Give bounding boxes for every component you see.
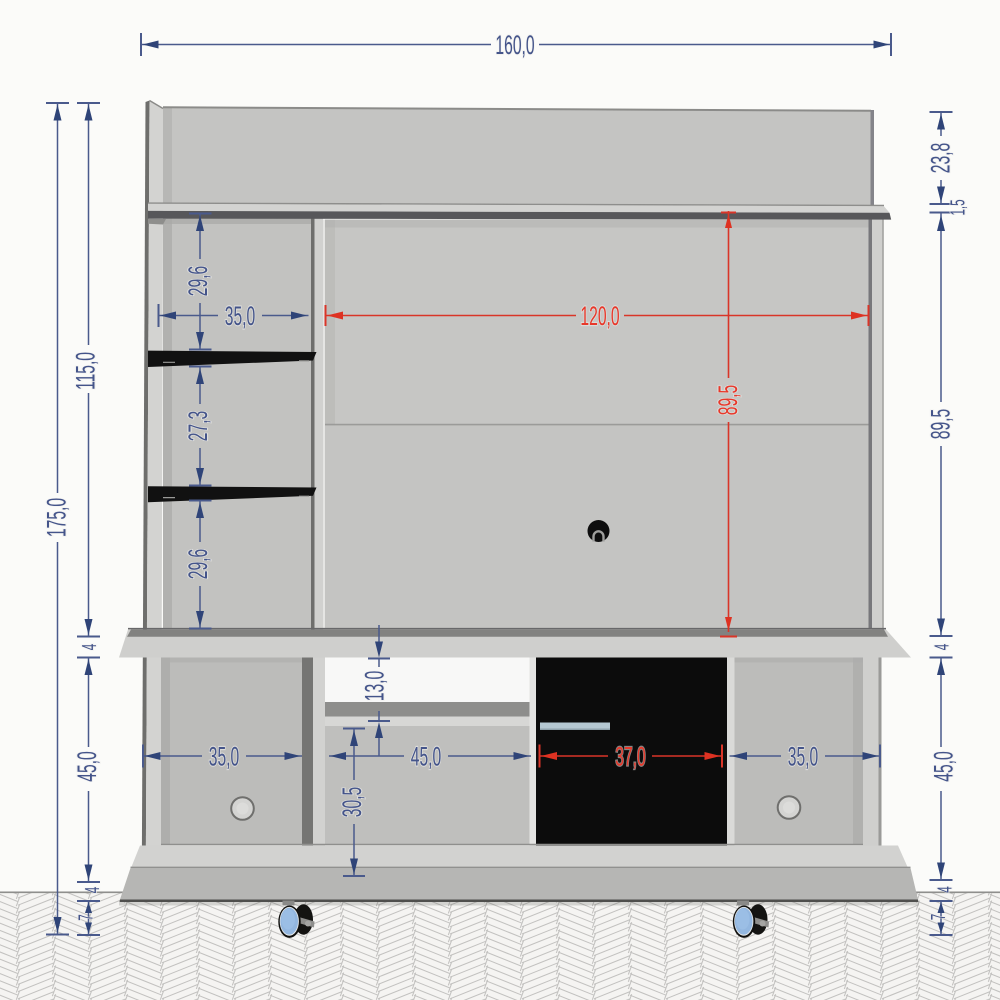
svg-text:45,0: 45,0 — [71, 751, 102, 781]
svg-text:160,0: 160,0 — [495, 29, 534, 60]
svg-text:35,0: 35,0 — [225, 300, 255, 331]
svg-text:175,0: 175,0 — [41, 498, 72, 537]
svg-text:45,0: 45,0 — [411, 741, 441, 772]
svg-text:89,5: 89,5 — [925, 409, 956, 439]
svg-text:29,6: 29,6 — [182, 266, 213, 296]
svg-text:4: 4 — [82, 887, 104, 893]
svg-text:120,0: 120,0 — [580, 300, 619, 331]
svg-text:29,6: 29,6 — [182, 549, 213, 579]
svg-text:13,0: 13,0 — [359, 671, 390, 701]
svg-text:45,0: 45,0 — [928, 751, 959, 781]
svg-text:4: 4 — [934, 886, 956, 892]
svg-text:37,0: 37,0 — [615, 741, 645, 772]
svg-text:4: 4 — [931, 644, 953, 650]
svg-text:89,5: 89,5 — [712, 385, 743, 415]
svg-text:1,5: 1,5 — [947, 199, 969, 215]
svg-text:4: 4 — [79, 644, 101, 650]
svg-text:35,0: 35,0 — [209, 741, 239, 772]
svg-text:35,0: 35,0 — [788, 741, 818, 772]
svg-text:7: 7 — [75, 914, 97, 920]
svg-text:7: 7 — [928, 914, 950, 920]
svg-text:23,8: 23,8 — [925, 143, 956, 173]
svg-text:115,0: 115,0 — [70, 352, 101, 390]
svg-text:30,5: 30,5 — [336, 787, 367, 817]
svg-text:27,3: 27,3 — [182, 411, 213, 441]
